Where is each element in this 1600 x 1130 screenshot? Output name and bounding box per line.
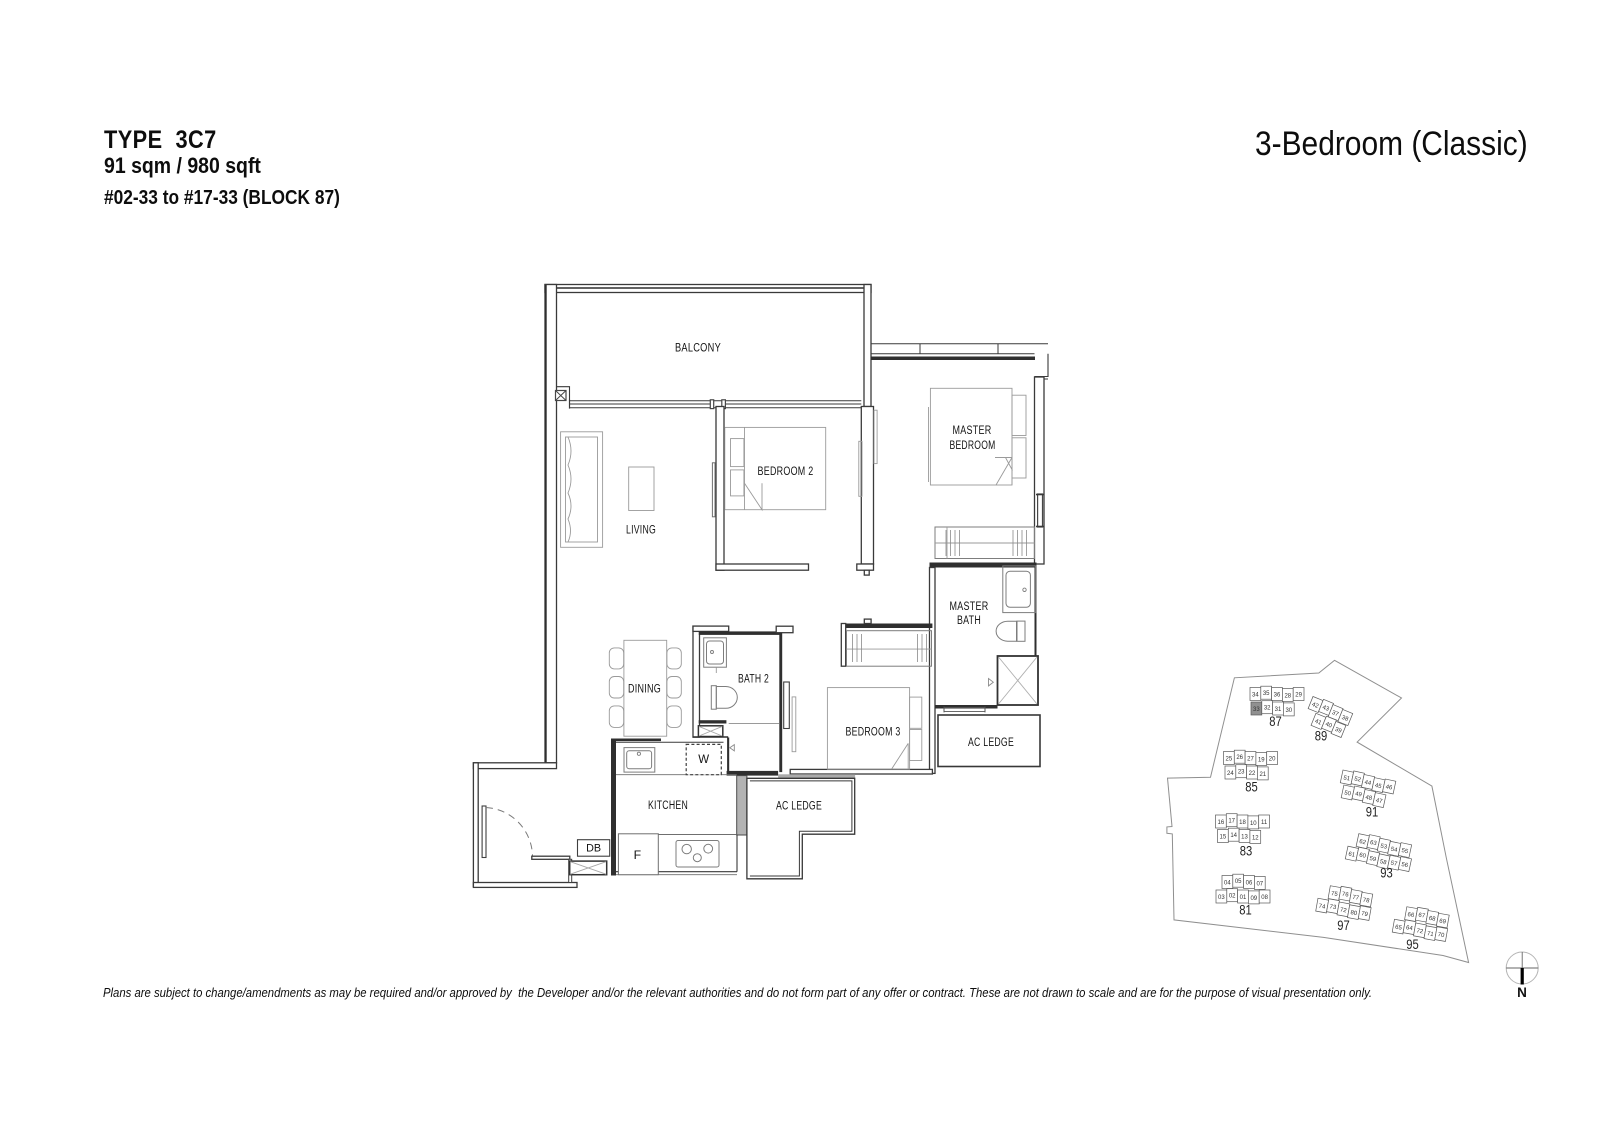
svg-text:04: 04	[1224, 881, 1231, 887]
svg-text:MASTER: MASTER	[953, 423, 992, 437]
svg-text:12: 12	[1252, 835, 1259, 841]
svg-text:31: 31	[1275, 707, 1282, 713]
svg-text:81: 81	[1239, 903, 1252, 918]
svg-text:22: 22	[1249, 771, 1256, 777]
svg-text:21: 21	[1259, 772, 1266, 778]
svg-text:32: 32	[1264, 706, 1271, 712]
svg-text:35: 35	[1263, 691, 1270, 697]
svg-text:13: 13	[1241, 835, 1248, 841]
svg-text:36: 36	[1274, 693, 1281, 699]
svg-text:02: 02	[1229, 894, 1236, 900]
svg-text:87: 87	[1269, 714, 1282, 729]
svg-text:F: F	[634, 848, 642, 862]
svg-text:11: 11	[1261, 820, 1268, 826]
svg-text:DINING: DINING	[628, 682, 661, 696]
svg-text:93: 93	[1380, 866, 1393, 881]
svg-text:KITCHEN: KITCHEN	[648, 798, 688, 812]
svg-text:06: 06	[1246, 881, 1253, 887]
svg-text:DB: DB	[586, 843, 601, 855]
svg-text:BEDROOM 3: BEDROOM 3	[846, 725, 901, 739]
svg-text:BATH 2: BATH 2	[738, 671, 769, 685]
svg-text:05: 05	[1235, 879, 1242, 885]
svg-text:19: 19	[1258, 757, 1265, 763]
svg-text:09: 09	[1250, 896, 1257, 902]
svg-text:83: 83	[1240, 844, 1253, 859]
svg-text:20: 20	[1269, 757, 1276, 763]
svg-text:AC LEDGE: AC LEDGE	[968, 735, 1014, 749]
svg-text:08: 08	[1261, 895, 1268, 901]
svg-text:BATH: BATH	[957, 613, 981, 627]
svg-text:15: 15	[1220, 835, 1227, 841]
svg-text:25: 25	[1226, 757, 1233, 763]
svg-text:27: 27	[1247, 757, 1254, 763]
svg-text:14: 14	[1230, 833, 1237, 839]
svg-text:24: 24	[1227, 771, 1234, 777]
svg-text:18: 18	[1239, 820, 1246, 826]
svg-text:BEDROOM: BEDROOM	[950, 438, 996, 452]
svg-text:30: 30	[1285, 708, 1292, 714]
svg-text:07: 07	[1256, 881, 1263, 887]
svg-text:89: 89	[1315, 729, 1328, 744]
svg-text:28: 28	[1284, 693, 1291, 699]
svg-text:23: 23	[1238, 770, 1245, 776]
svg-text:BEDROOM 2: BEDROOM 2	[758, 464, 814, 478]
svg-text:N: N	[1517, 985, 1527, 1000]
svg-text:W: W	[698, 754, 709, 766]
svg-text:BALCONY: BALCONY	[675, 341, 721, 355]
svg-text:MASTER: MASTER	[950, 599, 989, 613]
svg-text:85: 85	[1245, 780, 1258, 795]
svg-text:AC LEDGE: AC LEDGE	[776, 798, 822, 812]
svg-text:LIVING: LIVING	[626, 522, 656, 536]
svg-text:34: 34	[1252, 693, 1259, 699]
svg-text:03: 03	[1218, 895, 1225, 901]
svg-text:97: 97	[1337, 918, 1350, 933]
svg-text:29: 29	[1295, 693, 1302, 699]
svg-text:17: 17	[1228, 819, 1235, 825]
svg-text:10: 10	[1250, 821, 1257, 827]
svg-text:16: 16	[1218, 820, 1225, 826]
svg-text:95: 95	[1406, 937, 1419, 952]
svg-text:26: 26	[1236, 755, 1243, 761]
svg-text:91: 91	[1366, 805, 1379, 820]
svg-text:01: 01	[1240, 895, 1247, 901]
svg-text:33: 33	[1253, 707, 1260, 713]
